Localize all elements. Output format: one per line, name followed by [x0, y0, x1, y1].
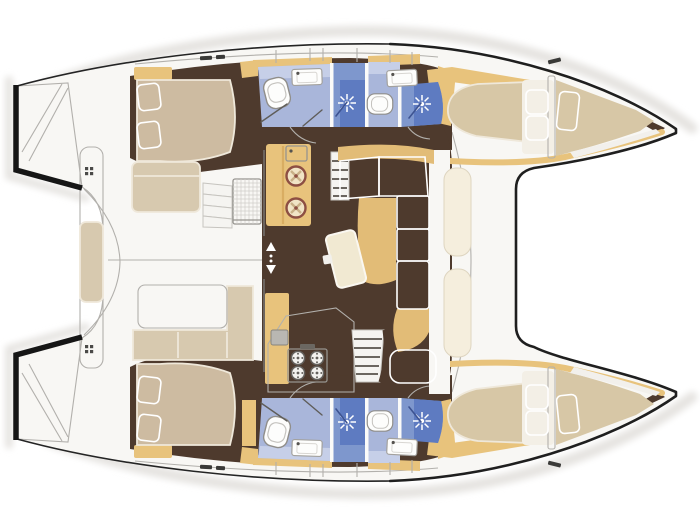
stove-burner-icon: [287, 167, 306, 186]
sink-icon: [292, 68, 323, 85]
toilet-icon: [367, 94, 393, 114]
shelf-port-aft-cabin: [134, 67, 172, 80]
stove-burner-icon: [287, 199, 306, 218]
catamaran-floor-plan: [0, 0, 700, 525]
shelf-starboard-aft-cabin: [134, 445, 172, 458]
stove-burner-icon: [310, 351, 323, 364]
cockpit-steps: [203, 183, 232, 228]
toilet-icon: [367, 411, 393, 431]
sink-icon: [387, 69, 418, 87]
stove-burner-icon: [291, 351, 304, 364]
floor-plan-canvas: [0, 0, 700, 525]
stairs-starboard-hull: [352, 330, 385, 382]
sink-icon: [387, 438, 418, 456]
floor-hatch: [322, 254, 332, 264]
sink-icon: [292, 439, 323, 456]
stove-burner-icon: [310, 366, 323, 379]
galley-gray-sink: [271, 330, 288, 345]
aft-bench-cushion: [80, 222, 103, 302]
stove-burner-icon: [291, 366, 304, 379]
cockpit-bench-top: [132, 162, 200, 212]
